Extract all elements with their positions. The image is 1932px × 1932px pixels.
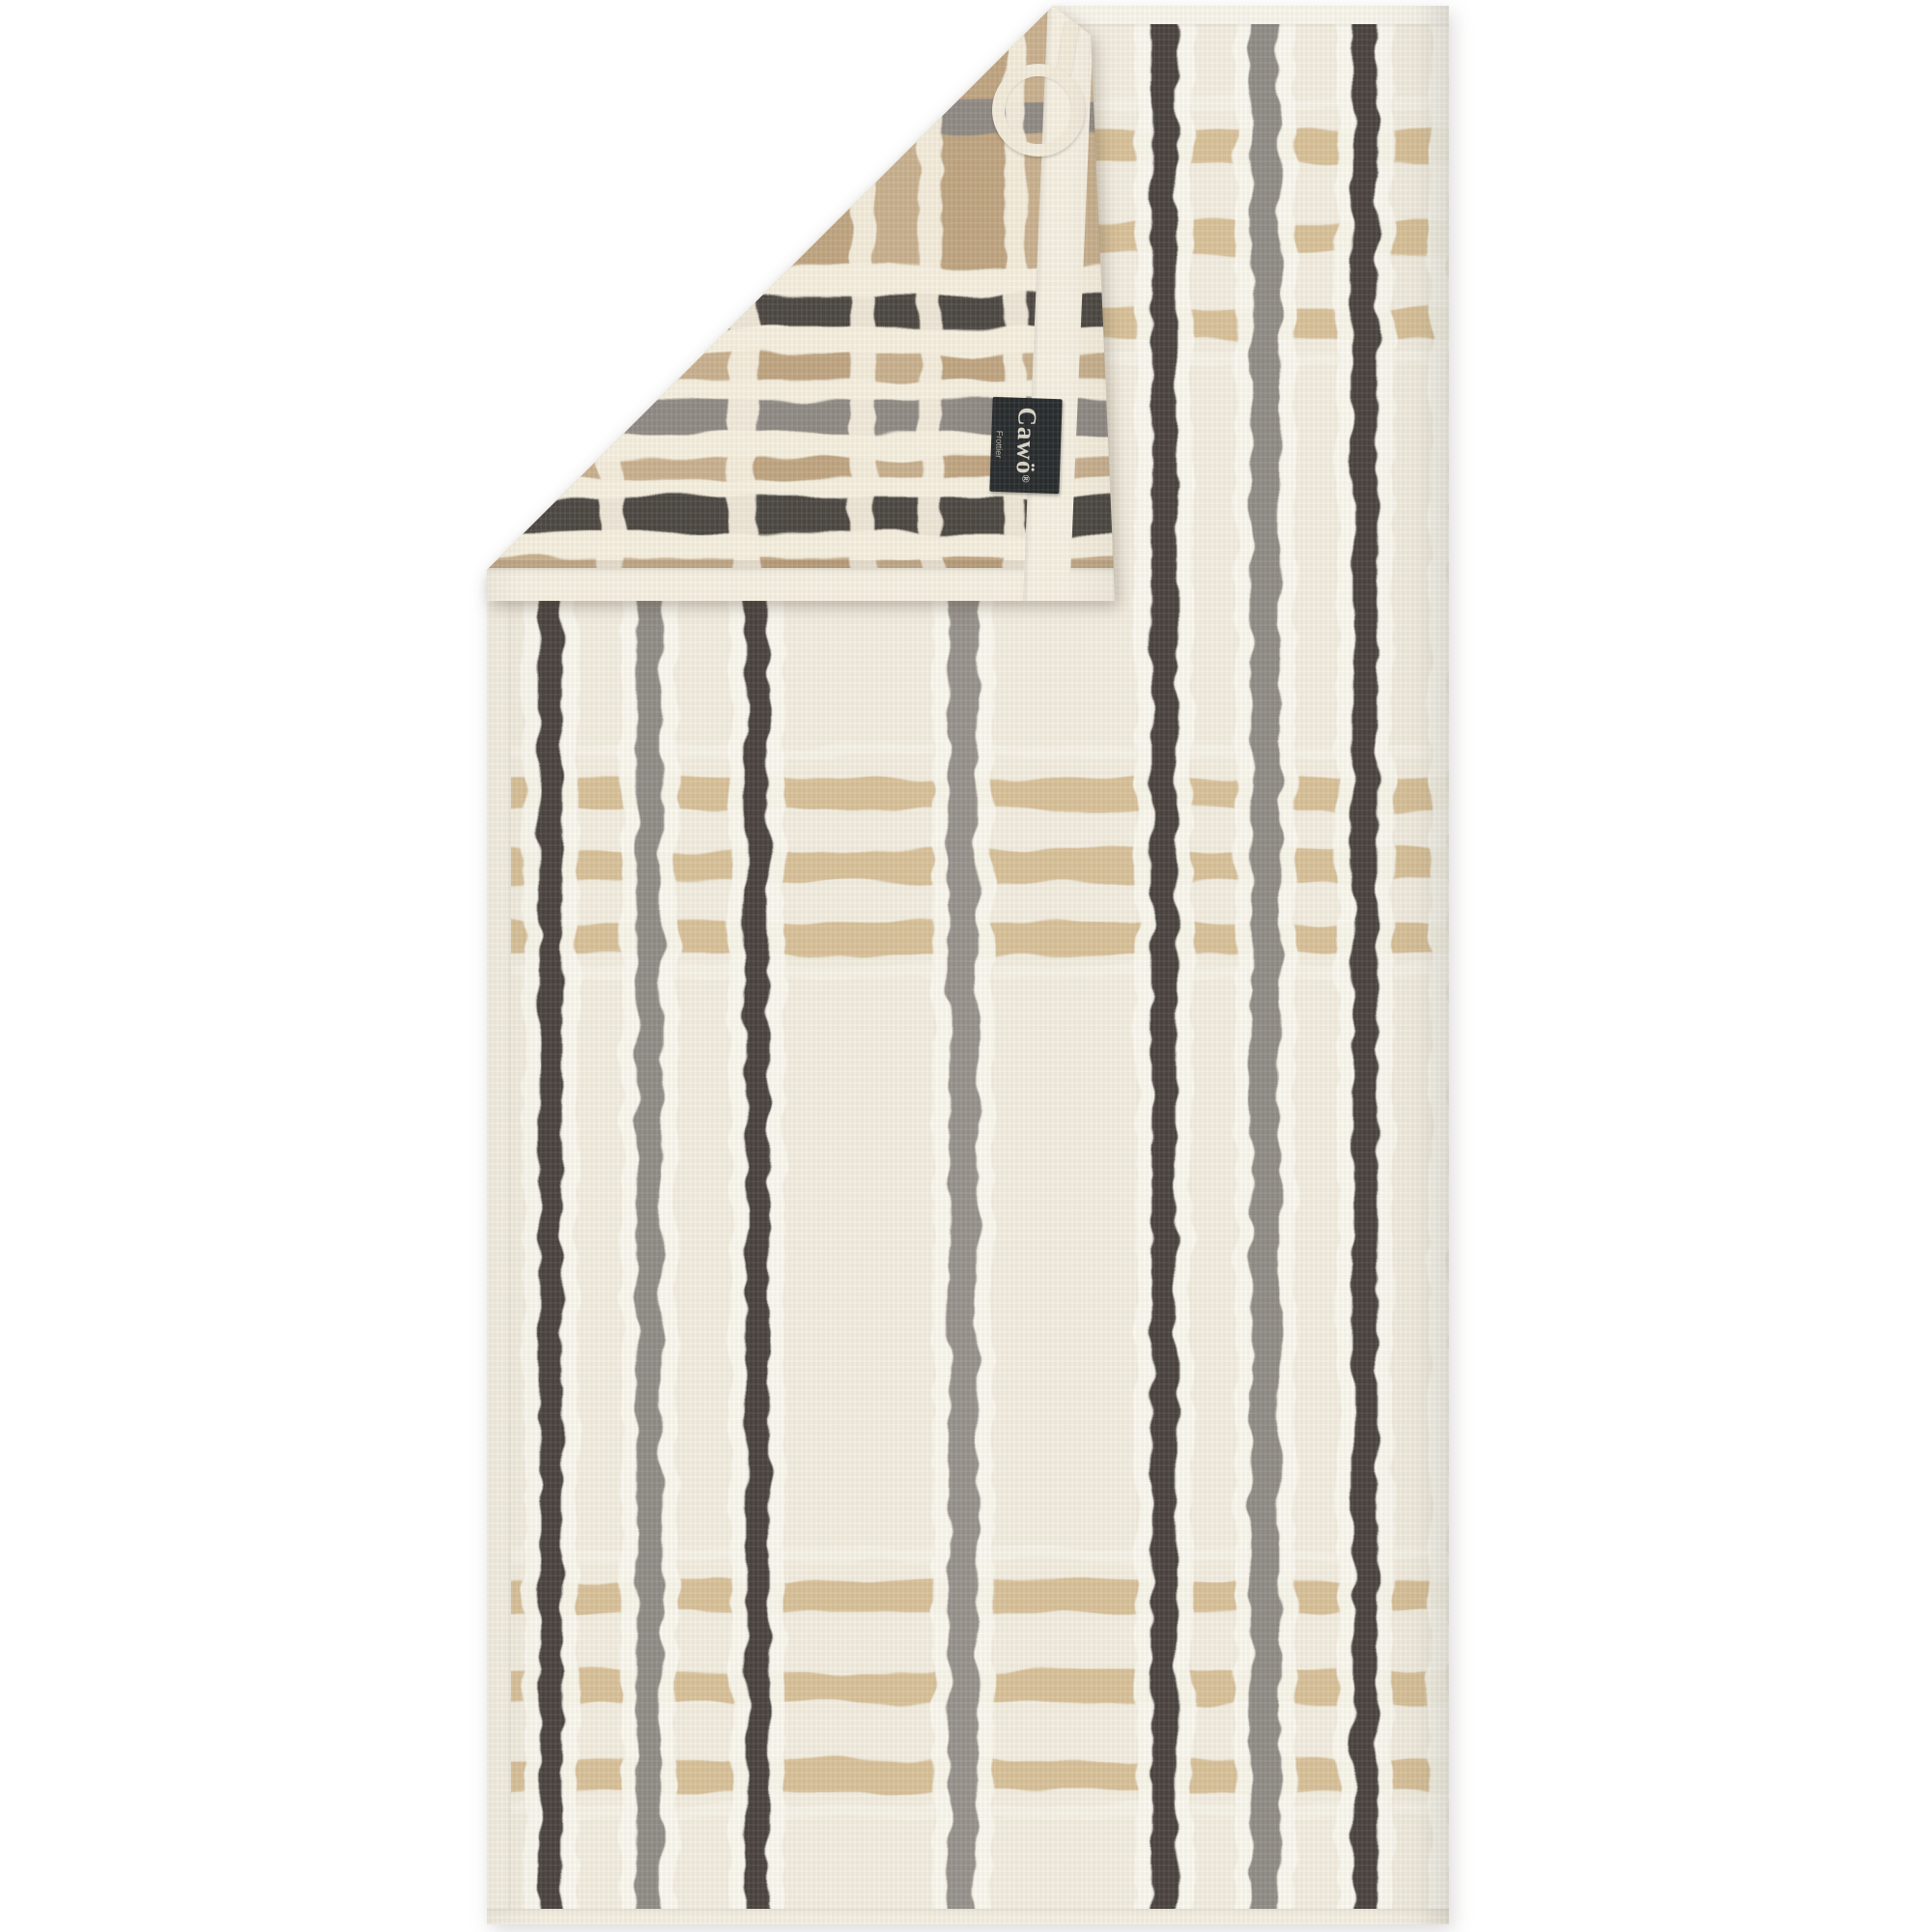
flap-white-stripe [599,6,624,601]
white-stripe [1236,6,1251,1924]
flap-white-stripe [729,6,758,601]
white-stripe [1280,6,1295,1924]
white-stripe [1177,6,1192,1924]
white-stripe [1378,6,1393,1924]
folded-corner-bottom-hem [487,568,1115,601]
flap-white-stripe [920,6,941,601]
colored-stripe [1251,6,1280,1924]
brand-label-text: Cawö® [1009,407,1042,484]
white-stripe [1136,6,1151,1924]
towel-right-edge-shade [1416,6,1449,1924]
brand-label-small-text: Frottier [994,431,1005,459]
registered-mark: ® [1019,474,1031,484]
towel-folded-corner-clip: Frottier Cawö® [487,6,1115,601]
colored-stripe [1151,6,1177,1924]
hanging-loop [992,64,1085,156]
brand-label: Frottier Cawö® [989,397,1062,494]
white-stripe [1337,6,1352,1924]
colored-stripe [1352,6,1378,1924]
flap-white-stripe [850,6,875,601]
product-photo: Frottier Cawö® [0,0,1932,1932]
towel-bottom-hem [487,1909,1449,1924]
towel-folded-corner: Frottier Cawö® [487,6,1115,601]
